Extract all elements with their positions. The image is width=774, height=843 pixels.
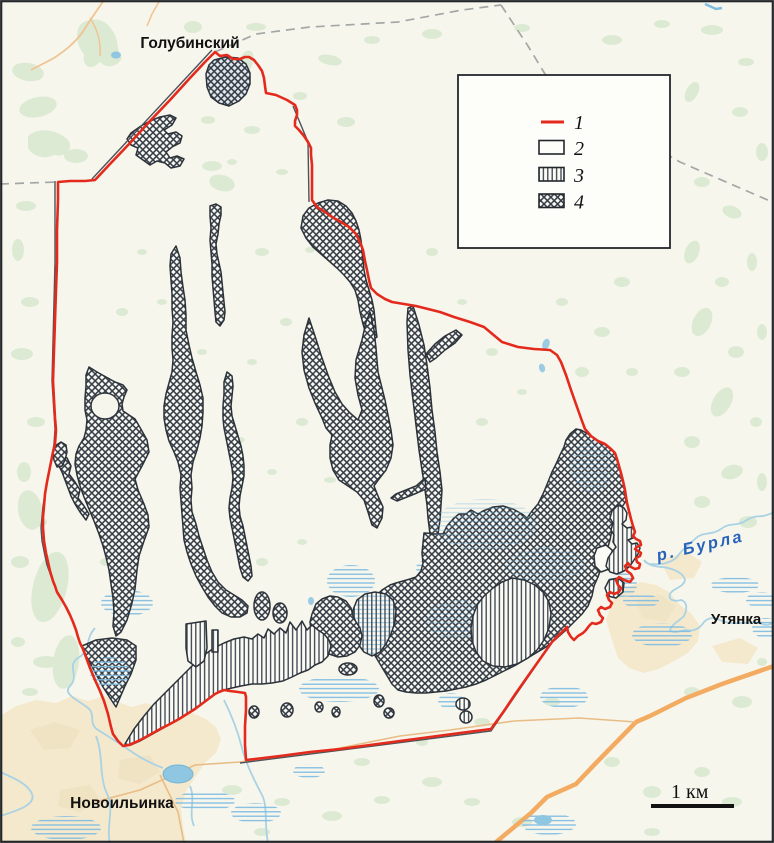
svg-text:Новоильинка: Новоильинка (70, 795, 174, 812)
svg-text:1 км: 1 км (671, 781, 709, 803)
svg-text:4: 4 (574, 192, 584, 214)
svg-text:1: 1 (574, 112, 584, 134)
svg-text:2: 2 (574, 138, 584, 160)
svg-text:Голубинский: Голубинский (140, 35, 239, 52)
svg-text:3: 3 (573, 165, 584, 187)
svg-text:Утянка: Утянка (711, 611, 762, 628)
